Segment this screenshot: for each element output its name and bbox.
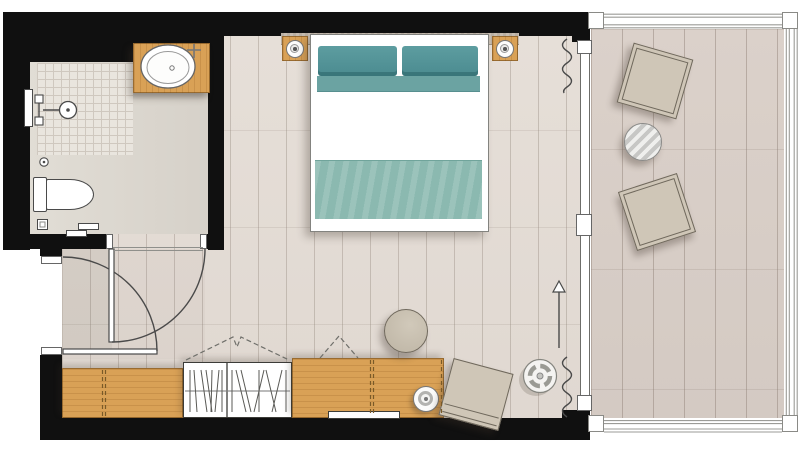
round-side-table — [624, 123, 662, 161]
entry-door-jamb-top — [41, 256, 62, 264]
deck-chair-bottom-frame — [623, 178, 691, 246]
vanity-shadow — [133, 93, 210, 100]
bath-door-jamb-right — [200, 234, 207, 249]
floor-plan — [0, 0, 800, 450]
railing-post-tl — [588, 12, 604, 29]
door-swing-shade — [63, 249, 112, 353]
vanity-counter — [133, 43, 210, 93]
railing-post-tr — [782, 12, 798, 29]
bedside-lamp-right-icon — [496, 40, 514, 58]
wardrobe — [183, 362, 292, 418]
railing-post-bl — [588, 415, 604, 432]
deck-chair-top-frame — [622, 48, 689, 115]
window-mullion-middle — [576, 214, 592, 236]
bedside-lamp-right-dot — [503, 47, 507, 51]
console — [62, 368, 183, 418]
pouf — [384, 309, 428, 353]
duvet-fold — [317, 76, 480, 92]
bedside-lamp-left-dot — [293, 47, 297, 51]
toilet-bowl — [46, 179, 94, 210]
bath-door-jamb-left — [106, 234, 113, 249]
bedside-lamp-left-icon — [286, 40, 304, 58]
pillow-right — [402, 46, 478, 76]
floor-drain — [37, 219, 48, 230]
wall-bottom-stub — [562, 410, 590, 440]
entry-door-jamb-bottom — [41, 347, 62, 355]
railing-post-br — [782, 415, 798, 432]
window-mullion-bottom — [577, 395, 592, 411]
blanket — [315, 160, 482, 219]
tv — [328, 411, 400, 419]
desk-lamp-icon — [413, 386, 439, 412]
toilet-tank — [33, 177, 47, 212]
wall-above-vanity — [133, 12, 210, 43]
wall-left-step — [40, 249, 62, 256]
window-mullion-top — [577, 40, 592, 54]
wall-bathroom-right — [208, 12, 224, 250]
shower-tile-floor — [37, 63, 133, 155]
wall-left — [3, 12, 30, 250]
shower-step-2 — [78, 223, 99, 230]
wall-niche — [24, 89, 33, 127]
pillow-left — [318, 46, 397, 76]
shower-step-1 — [66, 230, 87, 237]
desk-lamp-dot — [424, 397, 428, 401]
double-bed — [310, 34, 489, 232]
